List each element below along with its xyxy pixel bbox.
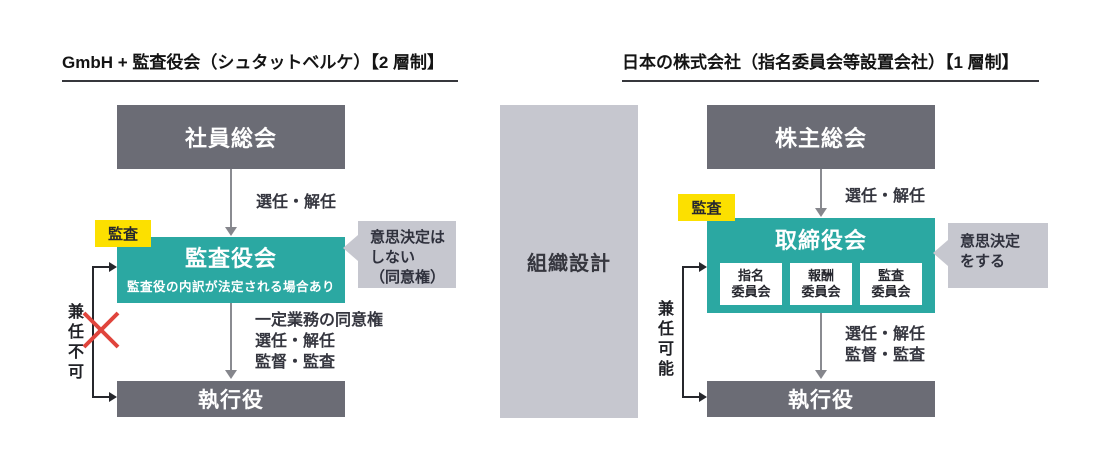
committee-label: 監査 bbox=[878, 268, 904, 284]
right-bracket-top-arm bbox=[682, 266, 699, 268]
supervisory-board-note: 監査役の内訳が法定される場合あり bbox=[127, 276, 335, 295]
right-supervise-label-line: 監督・監査 bbox=[845, 345, 925, 366]
left-supervise-labels: 一定業務の同意権 選任・解任 監督・監査 bbox=[255, 310, 383, 373]
board-of-directors-title: 取締役会 bbox=[775, 228, 867, 254]
makes-decision-callout: 意思決定 をする bbox=[948, 223, 1048, 288]
governance-comparison-diagram: GmbH + 監査役会（シュタットベルケ）【2 層制】 社員総会 選任・解任 監… bbox=[0, 0, 1100, 466]
members-general-meeting-box: 社員総会 bbox=[117, 105, 345, 169]
board-of-directors-box: 取締役会 指名 委員会 報酬 委員会 監査 委員会 bbox=[707, 218, 935, 313]
right-supervise-arrow-line bbox=[820, 313, 822, 371]
callout-pointer-icon bbox=[343, 235, 358, 261]
left-bracket-bottom-arm bbox=[92, 396, 109, 398]
supervisory-board-title: 監査役会 bbox=[185, 246, 277, 272]
left-audit-tag: 監査 bbox=[95, 220, 151, 247]
left-executive-box: 執行役 bbox=[117, 381, 345, 417]
left-bracket-top-arm bbox=[92, 266, 109, 268]
right-supervise-label-line: 選任・解任 bbox=[845, 324, 925, 345]
prohibition-x-icon bbox=[81, 309, 121, 351]
right-supervise-arrow-head-icon bbox=[815, 370, 827, 379]
left-appoint-arrow-line bbox=[230, 169, 232, 228]
right-bracket-bottom-arm bbox=[682, 396, 699, 398]
left-supervise-label-line: 一定業務の同意権 bbox=[255, 310, 383, 331]
left-bracket-top-arrow-icon bbox=[109, 262, 117, 272]
right-supervise-labels: 選任・解任 監督・監査 bbox=[845, 324, 925, 366]
nomination-committee-box: 指名 委員会 bbox=[720, 263, 782, 305]
concurrent-prohibited-label: 兼任不可 bbox=[64, 303, 82, 383]
shareholders-meeting-box: 株主総会 bbox=[707, 105, 935, 169]
left-appoint-arrow-head-icon bbox=[225, 227, 237, 236]
right-bracket-bottom-arrow-icon bbox=[699, 392, 707, 402]
right-section-title: 日本の株式会社（指名委員会等設置会社）【1 層制】 bbox=[622, 52, 1039, 82]
callout-line: （同意権） bbox=[370, 268, 452, 288]
callout-line: 意思決定は bbox=[370, 228, 452, 248]
right-audit-tag: 監査 bbox=[678, 194, 735, 221]
left-supervise-label-line: 選任・解任 bbox=[255, 331, 383, 352]
left-appoint-label: 選任・解任 bbox=[256, 192, 336, 213]
committee-row: 指名 委員会 報酬 委員会 監査 委員会 bbox=[720, 263, 922, 305]
right-bracket-top-arrow-icon bbox=[699, 262, 707, 272]
callout-pointer-icon bbox=[933, 240, 948, 266]
organization-design-box: 組織設計 bbox=[500, 105, 638, 418]
right-appoint-arrow-line bbox=[820, 169, 822, 209]
compensation-committee-box: 報酬 委員会 bbox=[790, 263, 852, 305]
committee-label: 委員会 bbox=[731, 284, 770, 300]
committee-label: 報酬 bbox=[808, 268, 834, 284]
right-appoint-label: 選任・解任 bbox=[845, 186, 925, 207]
left-section-title: GmbH + 監査役会（シュタットベルケ）【2 層制】 bbox=[62, 52, 458, 82]
left-supervise-label-line: 監督・監査 bbox=[255, 352, 383, 373]
no-decision-callout: 意思決定は しない （同意権） bbox=[358, 221, 456, 288]
callout-line: しない bbox=[370, 248, 452, 268]
committee-label: 委員会 bbox=[871, 284, 910, 300]
right-executive-box: 執行役 bbox=[707, 381, 935, 417]
callout-line: 意思決定 bbox=[960, 232, 1044, 252]
concurrent-allowed-label: 兼任可能 bbox=[654, 300, 672, 380]
committee-label: 指名 bbox=[738, 268, 764, 284]
supervisory-board-box: 監査役会 監査役の内訳が法定される場合あり bbox=[117, 237, 345, 303]
left-bracket-bottom-arrow-icon bbox=[109, 392, 117, 402]
right-appoint-arrow-head-icon bbox=[815, 208, 827, 217]
committee-label: 委員会 bbox=[801, 284, 840, 300]
callout-line: をする bbox=[960, 252, 1044, 272]
left-supervise-arrow-head-icon bbox=[225, 370, 237, 379]
right-bracket-line bbox=[682, 267, 684, 398]
left-supervise-arrow-line bbox=[230, 303, 232, 371]
audit-committee-box: 監査 委員会 bbox=[860, 263, 922, 305]
